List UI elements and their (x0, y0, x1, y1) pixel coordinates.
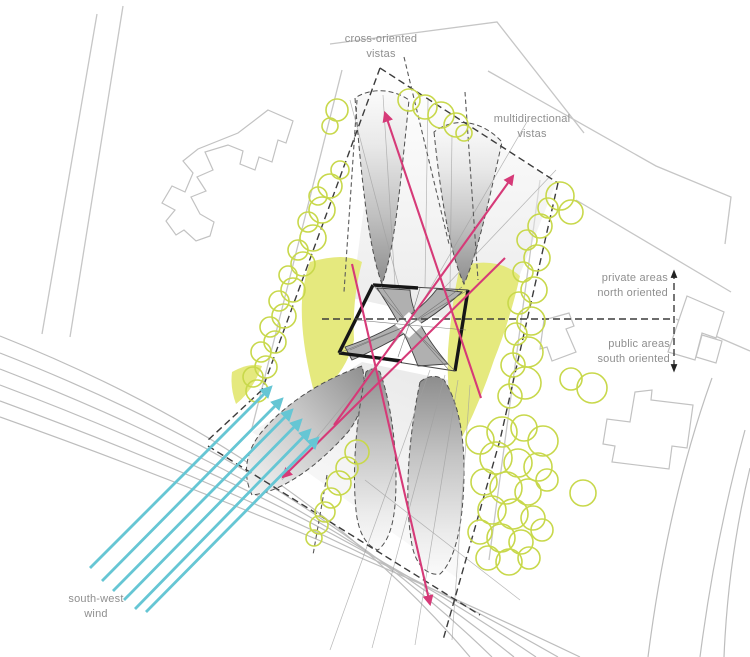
label-south-west-wind: south-west wind (38, 592, 154, 622)
site-analysis-diagram: cross-oriented vistas multidirectional v… (0, 0, 750, 657)
building-footprint (603, 390, 693, 469)
wind-arrow (146, 439, 317, 612)
label-cross-oriented-vistas: cross-oriented vistas (316, 32, 446, 62)
building-footprint (162, 110, 293, 241)
diagram-canvas (0, 0, 750, 657)
label-private-areas: private areas north oriented (552, 271, 668, 301)
label-multidirectional-vistas: multidirectional vistas (468, 112, 596, 142)
wind-arrow (113, 411, 291, 591)
label-public-areas: public areas south oriented (554, 337, 670, 367)
